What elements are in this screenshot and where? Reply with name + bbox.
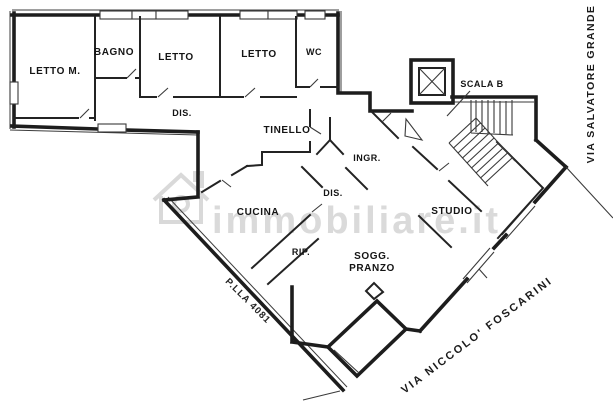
cucina-west-wall	[164, 132, 198, 200]
label-bagno: BAGNO	[94, 47, 134, 58]
label-dis-2: DIS.	[323, 188, 343, 198]
tinello-walls	[247, 110, 310, 166]
stair-flight1-treads	[476, 100, 506, 134]
elevator-x-icon	[419, 68, 445, 95]
label-soggiorno-line1: SOGG.	[354, 251, 390, 262]
label-letto-2: LETTO	[241, 49, 277, 60]
label-ingresso: INGR.	[353, 153, 381, 163]
southeast-facade-wall	[406, 167, 566, 331]
window-top-5	[268, 11, 297, 19]
label-scala-b: SCALA B	[460, 79, 503, 89]
floor-plan-svg: immobiliare.it	[0, 0, 613, 403]
windows	[10, 11, 535, 373]
label-letto-m: LETTO M.	[29, 66, 80, 77]
floor-plan-image: immobiliare.it	[0, 0, 613, 403]
stair-flight2-treads	[449, 118, 512, 183]
label-studio: STUDIO	[431, 206, 472, 217]
window-left-wall	[10, 82, 18, 104]
window-top-3	[156, 11, 188, 19]
elevator	[411, 60, 453, 103]
soggiorno-west-wall	[292, 287, 328, 347]
bay-pillar	[366, 283, 383, 299]
hall-ingresso-wall	[372, 112, 398, 138]
bay-terrace	[328, 301, 406, 376]
dis2-walls	[302, 167, 367, 189]
label-street-foscarini: VIA NICCOLO' FOSCARINI	[399, 275, 555, 397]
label-dis-1: DIS.	[172, 108, 192, 118]
window-top-1	[100, 11, 132, 19]
label-letto-1: LETTO	[158, 52, 194, 63]
label-wc: WC	[306, 47, 322, 57]
window-south-corridor	[98, 124, 126, 132]
label-tinello: TINELLO	[264, 125, 311, 136]
window-top-6	[305, 11, 325, 19]
tinello-cucina-wall	[202, 166, 247, 192]
bedroom-partitions	[95, 17, 296, 120]
stairs	[405, 91, 515, 186]
window-bay	[334, 350, 359, 373]
ingresso-west-wall	[317, 118, 343, 154]
window-top-4	[240, 11, 268, 19]
door-ticks	[80, 69, 487, 278]
wc-and-hall-step-wall	[338, 13, 412, 111]
stairwell-outer-wall	[452, 97, 566, 167]
window-top-2	[132, 11, 156, 19]
door-swing-triangle	[405, 119, 422, 140]
label-street-salvatore-grande: VIA SALVATORE GRANDE	[585, 5, 597, 164]
label-parcel-number: P.LLA 4081	[223, 276, 273, 326]
label-soggiorno-line2: PRANZO	[349, 263, 395, 274]
label-cucina: CUCINA	[237, 207, 280, 218]
stair-flight1-frame	[471, 100, 513, 135]
label-rip: RIP.	[292, 247, 310, 257]
